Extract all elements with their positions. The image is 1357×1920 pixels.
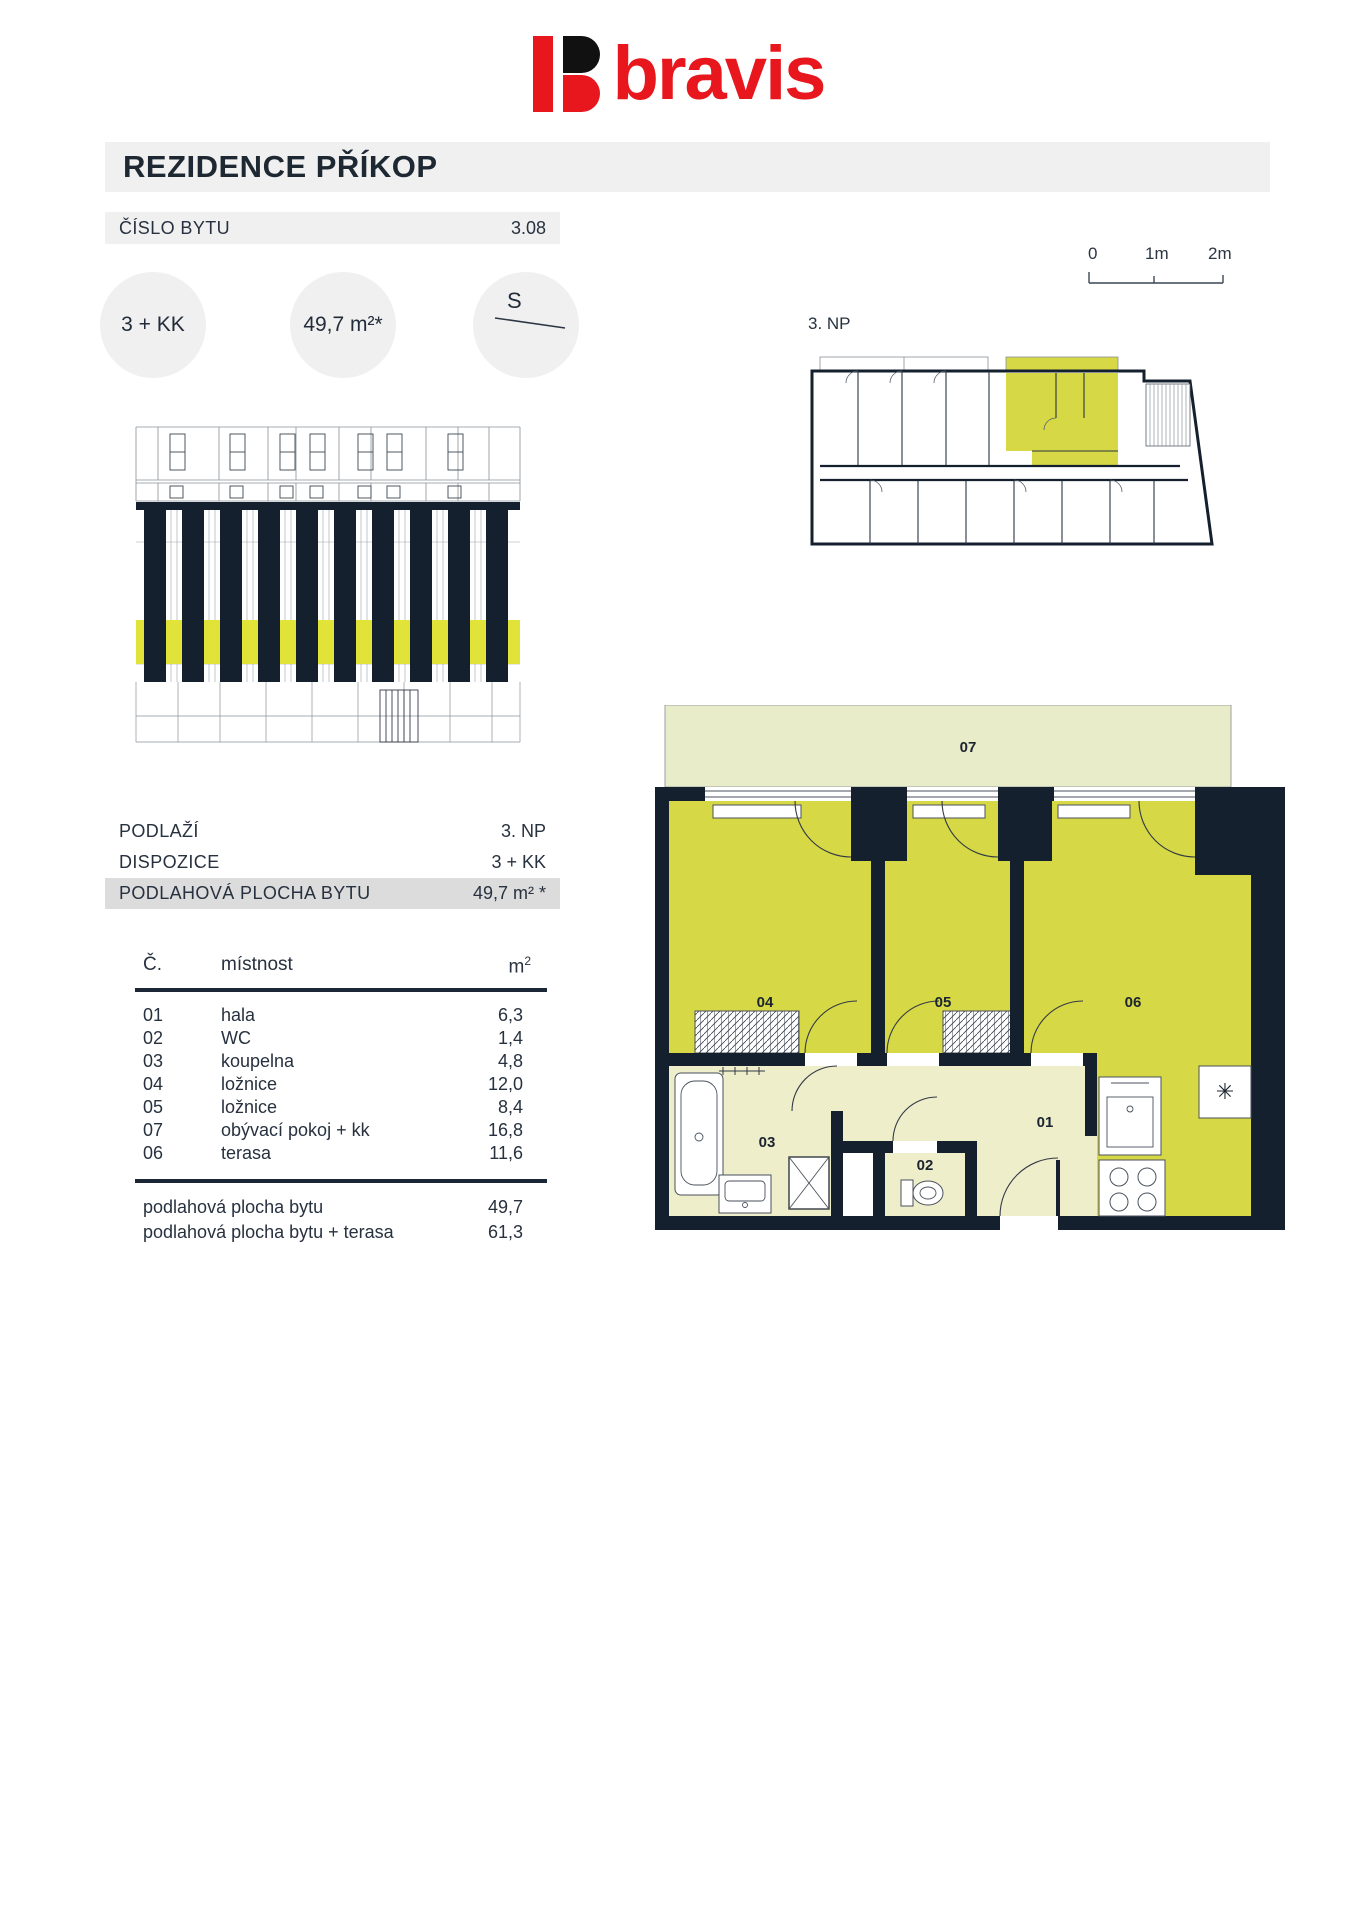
summary-row-floor: PODLAŽÍ 3. NP [105,816,560,847]
sink-icon [719,1175,771,1213]
kitchen-sink-icon [1099,1077,1161,1155]
room-number-01: 01 [1037,1114,1054,1131]
room-number-02: 02 [917,1157,934,1174]
summary-row-floor-area: PODLAHOVÁ PLOCHA BYTU 49,7 m² * [105,878,560,909]
project-title-bar: REZIDENCE PŘÍKOP [105,142,1270,192]
table-totals: podlahová plocha bytu 49,7 podlahová plo… [135,1183,547,1245]
table-row: 01 hala 6,3 [135,1004,547,1027]
bathtub-icon [675,1073,723,1195]
summary-row-disposition: DISPOZICE 3 + KK [105,847,560,878]
summary-table: PODLAŽÍ 3. NP DISPOZICE 3 + KK PODLAHOVÁ… [105,816,560,909]
bravis-b-icon [533,36,599,112]
room-number-03: 03 [759,1134,776,1151]
page-title: REZIDENCE PŘÍKOP [105,149,438,185]
window-icon [705,787,1195,801]
unit-number-label: ČÍSLO BYTU [105,218,230,239]
room-number-06: 06 [1125,994,1142,1011]
table-row: 07 obývací pokoj + kk 16,8 [135,1119,547,1142]
scale-tick-0: 0 [1088,244,1097,264]
stove-icon [1099,1160,1165,1216]
boiler-icon: ✳ [1199,1066,1251,1118]
unit-number-value: 3.08 [511,218,560,239]
scale-bar-line [1088,270,1228,286]
stairs-icon [1146,384,1190,446]
table-row: 02 WC 1,4 [135,1027,547,1050]
table-row: 06 terasa 11,6 [135,1142,547,1165]
highlighted-unit-terrace [1006,357,1118,371]
toilet-icon [901,1180,943,1206]
shower-icon [789,1157,829,1209]
room-table-header: Č. místnost m2 [135,950,547,988]
hall-area [831,1066,1097,1141]
area-badge: 49,7 m²* [290,272,396,378]
brand-logo: bravis [0,30,1357,118]
room-number-05: 05 [935,994,952,1011]
terrace-number: 07 [960,739,977,756]
room-list-table: Č. místnost m2 01 hala 6,3 02 WC 1,4 03 … [135,950,547,1245]
table-row: 04 ložnice 12,0 [135,1073,547,1096]
unit-number-row: ČÍSLO BYTU 3.08 [105,212,560,244]
table-row: 05 ložnice 8,4 [135,1096,547,1119]
upper-floor-windows [170,434,463,498]
terrace-area [665,705,1231,787]
brand-name: bravis [613,36,825,112]
table-row: 03 koupelna 4,8 [135,1050,547,1073]
floor-overview-plan [806,348,1218,558]
unit-floor-plan: 07 [655,705,1285,1230]
scale-tick-1m: 1m [1145,244,1169,264]
layout-badge: 3 + KK [100,272,206,378]
svg-text:✳: ✳ [1216,1079,1234,1104]
floor-overview-label: 3. NP [808,314,851,334]
total-row: podlahová plocha bytu + terasa 61,3 [135,1220,547,1245]
compass-north-label: S [507,288,522,314]
room-number-04: 04 [757,994,774,1011]
scale-tick-2m: 2m [1208,244,1232,264]
building-elevation-drawing [130,424,526,746]
apartment-datasheet: bravis REZIDENCE PŘÍKOP ČÍSLO BYTU 3.08 … [0,0,1357,1920]
compass-badge: S [473,272,579,378]
scale-bar: 0 1m 2m [1088,244,1228,286]
highlighted-unit [1006,373,1118,451]
compass-needle-icon [473,272,579,378]
total-row: podlahová plocha bytu 49,7 [135,1195,547,1220]
